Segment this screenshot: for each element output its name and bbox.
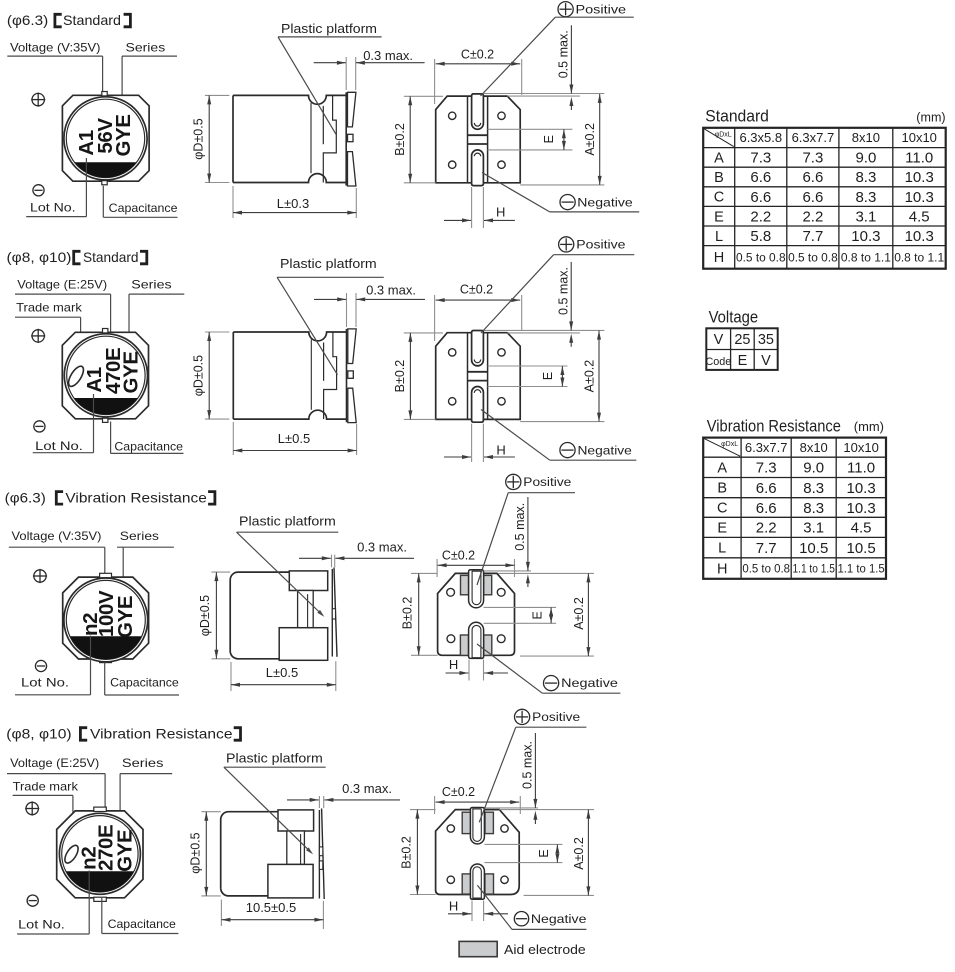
svg-text:L: L — [718, 541, 726, 557]
svg-text:6.6: 6.6 — [756, 500, 777, 517]
svg-text:C: C — [717, 501, 727, 517]
svg-text:Plastic platform: Plastic platform — [239, 514, 336, 528]
svg-text:A±0.2: A±0.2 — [583, 360, 597, 393]
svg-text:6.3x7.7: 6.3x7.7 — [745, 440, 788, 455]
svg-text:10x10: 10x10 — [843, 440, 878, 455]
svg-text:Lot No.: Lot No. — [21, 676, 69, 690]
svg-text:10.3: 10.3 — [905, 169, 934, 186]
svg-text:C±0.2: C±0.2 — [460, 283, 493, 297]
svg-text:Standard: Standard — [83, 250, 139, 265]
svg-text:H: H — [496, 442, 505, 457]
svg-text:B: B — [714, 170, 724, 186]
svg-text:0.5 max.: 0.5 max. — [521, 741, 535, 789]
svg-text:7.3: 7.3 — [750, 150, 771, 167]
svg-text:Trade mark: Trade mark — [16, 301, 83, 315]
svg-text:0.3 max.: 0.3 max. — [366, 283, 416, 298]
svg-text:Negative: Negative — [561, 676, 618, 690]
svg-text:3.1: 3.1 — [803, 520, 824, 537]
svg-text:(φ8, φ10): (φ8, φ10) — [6, 727, 71, 742]
svg-text:A±0.2: A±0.2 — [572, 837, 586, 870]
svg-text:φD±0.5: φD±0.5 — [198, 595, 212, 636]
svg-text:Series: Series — [120, 529, 159, 543]
svg-text:L±0.5: L±0.5 — [278, 431, 310, 446]
svg-text:6.6: 6.6 — [750, 169, 771, 186]
svg-text:B: B — [717, 481, 727, 497]
svg-text:A: A — [717, 460, 727, 476]
svg-text:10x10: 10x10 — [901, 130, 936, 145]
svg-text:φDxL: φDxL — [715, 131, 732, 138]
svg-text:(mm): (mm) — [916, 111, 945, 125]
svg-text:6.3x7.7: 6.3x7.7 — [792, 130, 835, 145]
svg-text:10.5±0.5: 10.5±0.5 — [246, 900, 297, 915]
svg-text:Voltage (E:25V): Voltage (E:25V) — [17, 278, 107, 292]
svg-text:GYE: GYE — [112, 114, 135, 156]
svg-text:1.1 to 1.5: 1.1 to 1.5 — [792, 562, 835, 576]
svg-text:10.3: 10.3 — [846, 480, 875, 497]
svg-text:1.1 to 1.5: 1.1 to 1.5 — [837, 562, 884, 576]
svg-text:Standard: Standard — [63, 13, 121, 28]
svg-text:Voltage: Voltage — [709, 308, 759, 326]
svg-text:Plastic platform: Plastic platform — [281, 22, 377, 36]
svg-text:11.0: 11.0 — [905, 150, 933, 167]
svg-text:9.0: 9.0 — [855, 150, 876, 167]
svg-text:Positive: Positive — [532, 710, 580, 724]
svg-text:6.6: 6.6 — [802, 189, 823, 206]
svg-text:E: E — [542, 135, 556, 143]
svg-text:4.5: 4.5 — [851, 520, 872, 537]
svg-text:Lot No.: Lot No. — [35, 439, 83, 453]
svg-text:H: H — [449, 899, 458, 914]
svg-text:2.2: 2.2 — [750, 208, 771, 225]
svg-text:C±0.2: C±0.2 — [442, 785, 475, 799]
svg-text:8.3: 8.3 — [803, 480, 824, 497]
svg-text:Plastic platform: Plastic platform — [280, 257, 377, 271]
svg-text:0.5 to 0.8: 0.5 to 0.8 — [736, 250, 786, 264]
svg-text:GYE: GYE — [113, 830, 136, 872]
svg-text:Capacitance: Capacitance — [109, 201, 178, 215]
svg-text:E: E — [531, 611, 545, 619]
svg-text:Positive: Positive — [576, 238, 625, 252]
svg-text:0.5 max.: 0.5 max. — [556, 267, 570, 315]
svg-text:10.3: 10.3 — [905, 228, 934, 245]
svg-text:8.3: 8.3 — [855, 189, 876, 206]
svg-text:Vibration Resistance: Vibration Resistance — [707, 417, 841, 435]
svg-text:0.8 to 1.1: 0.8 to 1.1 — [841, 250, 891, 264]
svg-text:H: H — [496, 205, 505, 220]
svg-text:(mm): (mm) — [854, 420, 884, 434]
svg-text:B±0.2: B±0.2 — [401, 597, 415, 630]
svg-text:Positive: Positive — [576, 2, 627, 16]
svg-text:Capacitance: Capacitance — [114, 439, 183, 453]
svg-text:Negative: Negative — [578, 443, 632, 457]
svg-text:0.3 max.: 0.3 max. — [357, 540, 407, 555]
svg-text:Series: Series — [131, 278, 171, 292]
svg-text:A: A — [714, 151, 724, 167]
svg-text:7.7: 7.7 — [756, 540, 777, 557]
svg-text:8x10: 8x10 — [800, 440, 828, 455]
svg-text:8.3: 8.3 — [855, 169, 876, 186]
svg-text:H: H — [717, 561, 727, 577]
svg-text:2.2: 2.2 — [802, 208, 823, 225]
svg-text:Vibration Resistance: Vibration Resistance — [65, 491, 206, 506]
svg-text:8x10: 8x10 — [852, 130, 880, 145]
svg-text:7.3: 7.3 — [802, 150, 823, 167]
svg-text:4.5: 4.5 — [909, 208, 930, 225]
svg-text:C: C — [714, 190, 724, 206]
svg-text:φD±0.5: φD±0.5 — [192, 118, 206, 159]
svg-text:6.3x5.8: 6.3x5.8 — [739, 130, 782, 145]
svg-text:0.8 to 1.1: 0.8 to 1.1 — [894, 250, 944, 264]
svg-text:GYE: GYE — [114, 596, 137, 638]
svg-text:0.5 max.: 0.5 max. — [557, 30, 571, 78]
svg-text:10.5: 10.5 — [799, 540, 828, 557]
svg-text:10.3: 10.3 — [851, 228, 880, 245]
svg-text:Capacitance: Capacitance — [110, 676, 179, 690]
svg-text:11.0: 11.0 — [847, 460, 875, 477]
svg-text:Capacitance: Capacitance — [108, 917, 177, 931]
svg-text:10.5: 10.5 — [846, 540, 875, 557]
svg-text:H: H — [449, 657, 458, 672]
svg-text:(φ6.3): (φ6.3) — [7, 13, 48, 28]
svg-text:B±0.2: B±0.2 — [393, 360, 407, 393]
svg-text:L: L — [715, 229, 723, 245]
svg-text:Negative: Negative — [531, 912, 587, 926]
svg-text:Aid electrode: Aid electrode — [504, 942, 586, 957]
svg-text:Series: Series — [122, 756, 163, 770]
svg-text:L±0.5: L±0.5 — [266, 665, 298, 680]
svg-text:9.0: 9.0 — [803, 460, 824, 477]
svg-text:3.1: 3.1 — [855, 208, 876, 225]
svg-text:C±0.2: C±0.2 — [442, 549, 475, 563]
svg-text:Lot No.: Lot No. — [30, 201, 76, 215]
svg-text:Negative: Negative — [577, 195, 633, 209]
svg-text:Standard: Standard — [705, 108, 769, 126]
svg-text:(φ6.3): (φ6.3) — [5, 491, 46, 506]
svg-text:Code: Code — [705, 356, 731, 368]
svg-text:V: V — [761, 353, 771, 369]
svg-text:Lot No.: Lot No. — [18, 918, 65, 932]
svg-text:A±0.2: A±0.2 — [583, 123, 597, 156]
svg-text:Voltage (V:35V): Voltage (V:35V) — [12, 529, 102, 543]
svg-text:Voltage (E:25V): Voltage (E:25V) — [10, 756, 99, 770]
svg-text:5.8: 5.8 — [750, 228, 771, 245]
svg-text:Vibration Resistance: Vibration Resistance — [90, 727, 233, 742]
svg-text:7.7: 7.7 — [802, 228, 823, 245]
svg-text:H: H — [714, 250, 724, 266]
svg-text:25: 25 — [734, 332, 750, 348]
svg-text:GYE: GYE — [119, 351, 142, 393]
svg-text:Trade mark: Trade mark — [13, 780, 79, 794]
svg-text:6.6: 6.6 — [756, 480, 777, 497]
svg-text:6.6: 6.6 — [750, 189, 771, 206]
svg-text:8.3: 8.3 — [803, 500, 824, 517]
svg-text:2.2: 2.2 — [756, 520, 777, 537]
svg-text:A±0.2: A±0.2 — [572, 597, 586, 630]
svg-text:6.6: 6.6 — [802, 169, 823, 186]
svg-text:0.5 to 0.8: 0.5 to 0.8 — [742, 562, 790, 576]
svg-text:V: V — [714, 332, 724, 348]
svg-text:E: E — [738, 353, 748, 369]
svg-text:E: E — [537, 849, 551, 857]
svg-text:7.3: 7.3 — [756, 460, 777, 477]
svg-text:(φ8, φ10): (φ8, φ10) — [7, 250, 72, 265]
svg-text:E: E — [541, 372, 555, 380]
svg-text:Series: Series — [126, 41, 166, 55]
svg-text:B±0.2: B±0.2 — [400, 836, 414, 869]
svg-text:Positive: Positive — [523, 475, 571, 489]
svg-text:C±0.2: C±0.2 — [461, 47, 494, 61]
svg-text:B±0.2: B±0.2 — [393, 123, 407, 156]
svg-text:10.3: 10.3 — [905, 189, 934, 206]
svg-text:φD±0.5: φD±0.5 — [189, 832, 203, 873]
svg-text:0.5 max.: 0.5 max. — [513, 503, 527, 551]
svg-text:Voltage (V:35V): Voltage (V:35V) — [10, 41, 101, 55]
svg-text:E: E — [714, 209, 724, 225]
svg-text:L±0.3: L±0.3 — [277, 196, 309, 211]
svg-text:0.3 max.: 0.3 max. — [342, 781, 392, 796]
svg-text:0.3 max.: 0.3 max. — [363, 48, 413, 63]
svg-text:φD±0.5: φD±0.5 — [192, 355, 206, 396]
svg-text:35: 35 — [758, 332, 774, 348]
svg-text:0.5 to 0.8: 0.5 to 0.8 — [788, 250, 838, 264]
svg-text:10.3: 10.3 — [846, 500, 875, 517]
svg-text:φDxL: φDxL — [721, 441, 738, 448]
svg-text:E: E — [717, 520, 727, 536]
svg-text:Plastic platform: Plastic platform — [226, 751, 323, 765]
